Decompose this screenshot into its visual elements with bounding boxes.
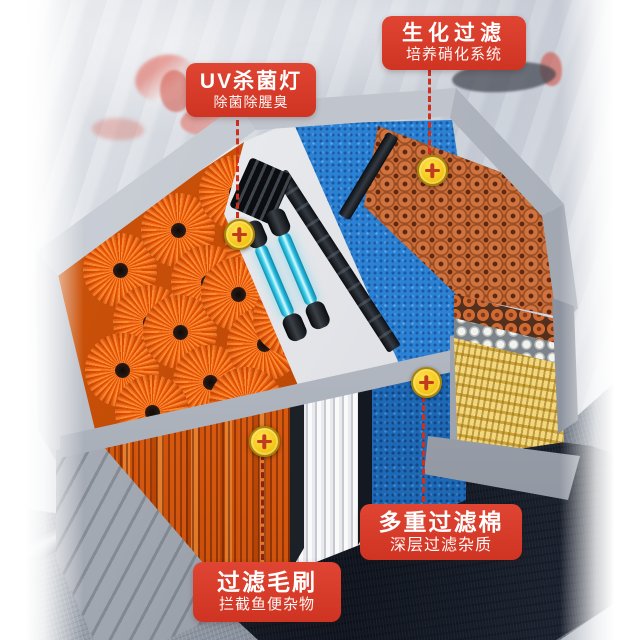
plus-marker-icon <box>417 155 448 186</box>
leader-line <box>422 396 425 502</box>
callout-subtitle: 深层过滤杂质 <box>390 537 492 555</box>
callout-bio-filter: 生化过滤 培养硝化系统 <box>382 16 526 70</box>
callout-title: 多重过滤棉 <box>379 510 504 535</box>
callout-subtitle: 除菌除腥臭 <box>214 95 289 110</box>
callout-filter-cotton: 多重过滤棉 深层过滤杂质 <box>360 504 522 560</box>
leader-line <box>428 70 431 154</box>
edge-fade <box>0 0 84 640</box>
leader-line <box>236 120 239 218</box>
plus-marker-icon <box>411 367 442 398</box>
callout-title: UV杀菌灯 <box>200 70 302 93</box>
edge-fade <box>560 0 640 640</box>
callout-subtitle: 培养硝化系统 <box>406 47 502 64</box>
callout-filter-brush: 过滤毛刷 拦截鱼便杂物 <box>193 562 341 622</box>
callout-subtitle: 拦截鱼便杂物 <box>219 597 315 614</box>
plus-marker-icon <box>224 219 255 250</box>
callout-title: 生化过滤 <box>402 22 506 45</box>
callout-title: 过滤毛刷 <box>217 570 317 595</box>
product-diagram: UV杀菌灯 除菌除腥臭 生化过滤 培养硝化系统 多重过滤棉 深层过滤杂质 过滤毛… <box>0 0 640 640</box>
callout-uv-lamp: UV杀菌灯 除菌除腥臭 <box>186 63 316 117</box>
koi-fish <box>92 118 144 140</box>
leader-line <box>261 454 264 560</box>
plus-marker-icon <box>249 426 280 457</box>
